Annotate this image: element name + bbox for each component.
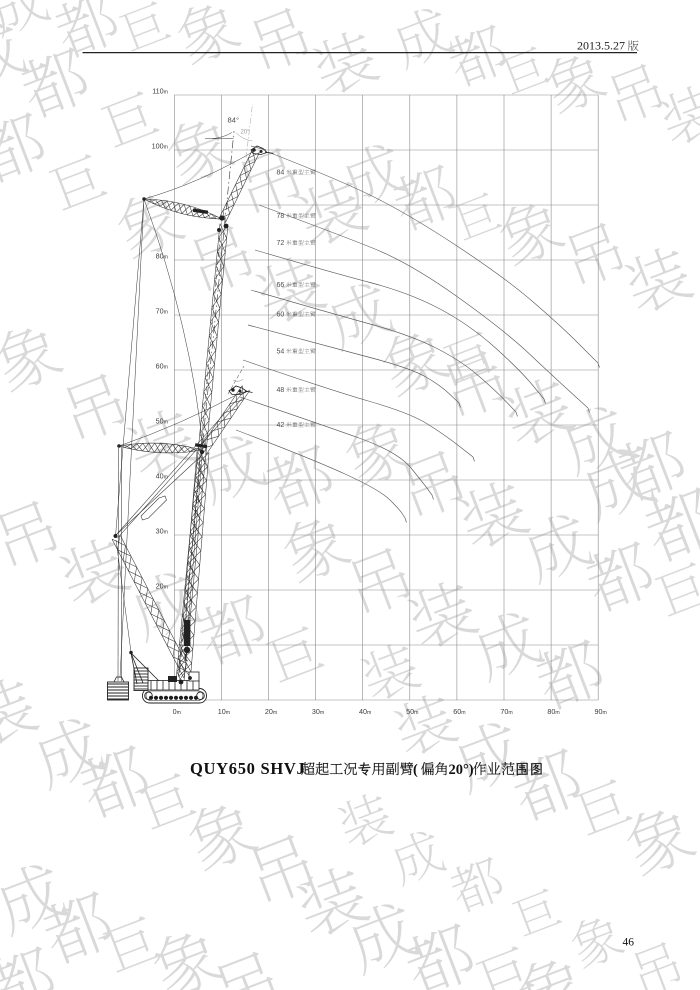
svg-text:20°): 20°) [449, 762, 474, 778]
svg-text:20m: 20m [156, 582, 168, 591]
svg-text:90m: 90m [595, 707, 607, 716]
svg-text:70m: 70m [156, 307, 168, 316]
svg-text:80m: 80m [547, 707, 559, 716]
svg-text:84°: 84° [228, 116, 239, 125]
svg-text:78: 78 [277, 213, 285, 220]
svg-text:30m: 30m [156, 527, 168, 536]
svg-text:40m: 40m [359, 707, 371, 716]
svg-text:30m: 30m [312, 707, 324, 716]
svg-text:2013.5.27: 2013.5.27 [577, 39, 625, 53]
svg-text:60: 60 [277, 312, 285, 319]
svg-text:QUY650 SHVJ: QUY650 SHVJ [190, 759, 305, 778]
svg-text:50m: 50m [406, 707, 418, 716]
svg-text:60m: 60m [156, 362, 168, 371]
svg-text:10m: 10m [218, 707, 230, 716]
svg-text:0m: 0m [173, 707, 181, 716]
svg-text:50m: 50m [156, 417, 168, 426]
svg-text:70m: 70m [500, 707, 512, 716]
svg-text:60m: 60m [453, 707, 465, 716]
svg-text:46: 46 [623, 937, 635, 949]
svg-text:80m: 80m [156, 252, 168, 261]
svg-text:72: 72 [277, 240, 285, 247]
svg-text:20m: 20m [265, 707, 277, 716]
svg-text:(: ( [413, 762, 418, 778]
svg-text:100m: 100m [152, 142, 168, 151]
svg-text:54: 54 [277, 349, 285, 356]
svg-text:84: 84 [277, 170, 285, 177]
svg-text:42: 42 [277, 422, 285, 429]
svg-text:66: 66 [277, 282, 285, 289]
svg-text:110m: 110m [152, 87, 168, 96]
svg-text:48: 48 [277, 387, 285, 394]
